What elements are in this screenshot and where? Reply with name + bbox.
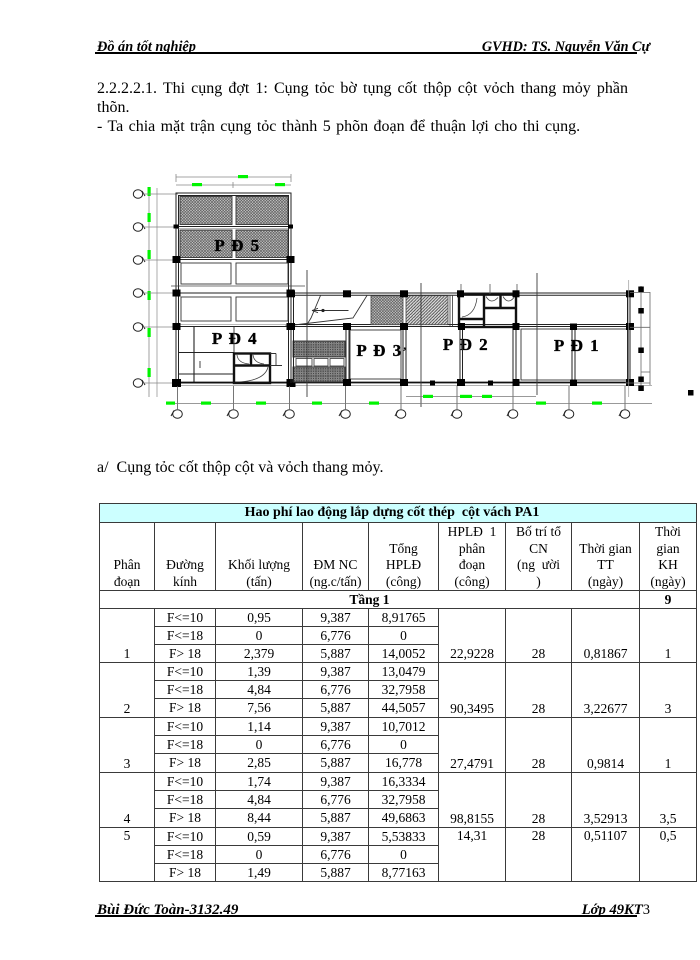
svg-text:P Đ 1: P Đ 1 — [554, 336, 600, 355]
svg-text:P Đ 3,: P Đ 3, — [356, 341, 407, 360]
svg-text:P Đ 4: P Đ 4 — [212, 329, 258, 348]
svg-text:P Đ 2: P Đ 2 — [443, 335, 489, 354]
svg-text:P Đ 5: P Đ 5 — [214, 236, 260, 255]
